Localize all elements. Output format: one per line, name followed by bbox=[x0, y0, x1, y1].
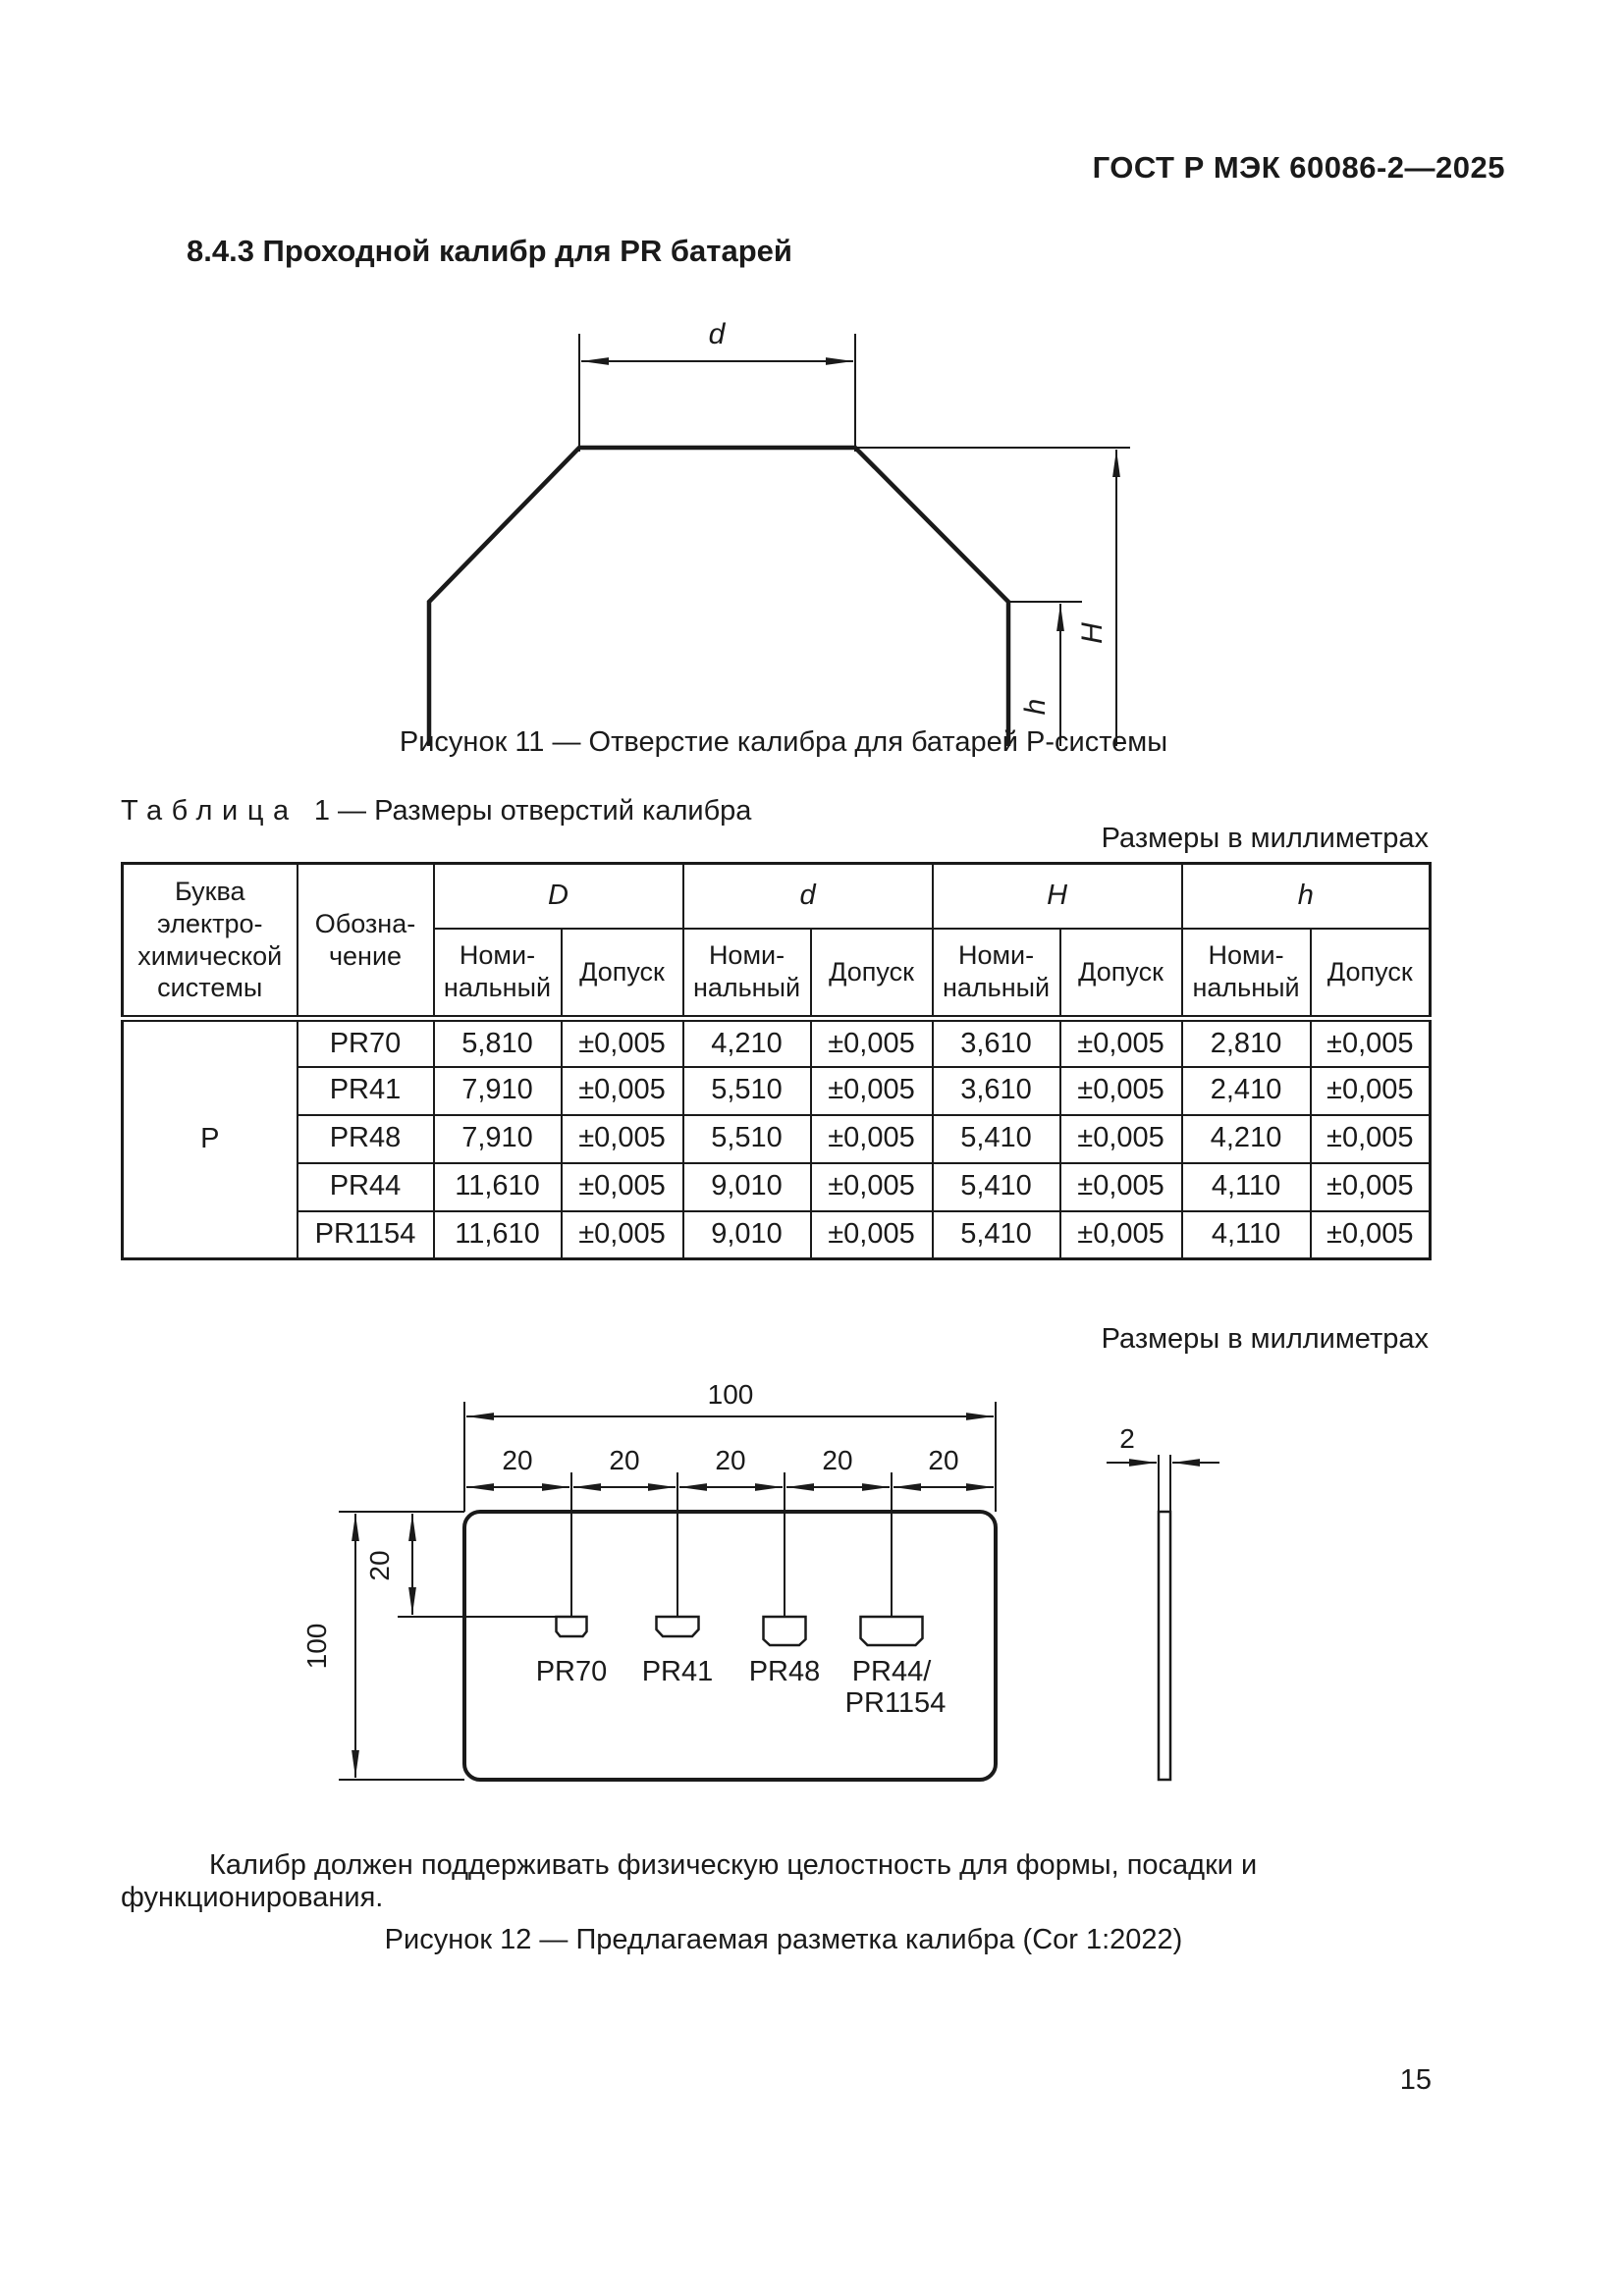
th-D-nominal: Номи- нальный bbox=[434, 929, 562, 1019]
dim-label-h: h bbox=[1019, 699, 1052, 716]
cell-value: 5,410 bbox=[933, 1115, 1060, 1163]
dim-step-label: 20 bbox=[822, 1445, 852, 1475]
cell-designation: PR70 bbox=[298, 1019, 434, 1067]
extension-lines bbox=[429, 334, 1130, 746]
document-page: ГОСТ Р МЭК 60086-2—2025 8.4.3 Проходной … bbox=[0, 0, 1624, 2296]
hole-label-pr44: PR44/ bbox=[852, 1656, 933, 1687]
cell-value: ±0,005 bbox=[1060, 1067, 1182, 1115]
cell-value: ±0,005 bbox=[562, 1067, 683, 1115]
cell-value: ±0,005 bbox=[562, 1211, 683, 1259]
section-heading: 8.4.3 Проходной калибр для PR батарей bbox=[187, 234, 792, 269]
th-group-D: D bbox=[434, 864, 683, 929]
cell-value: 2,810 bbox=[1182, 1019, 1311, 1067]
hole-label-pr1154: PR1154 bbox=[845, 1687, 947, 1719]
dimension-lines bbox=[355, 1416, 1219, 1778]
dimension-lines bbox=[431, 361, 1116, 746]
cell-value: 4,110 bbox=[1182, 1163, 1311, 1211]
cell-value: ±0,005 bbox=[1311, 1115, 1431, 1163]
cell-value: 5,510 bbox=[683, 1115, 811, 1163]
hole-pr41 bbox=[657, 1617, 699, 1636]
hole-pr48 bbox=[764, 1617, 806, 1645]
gauge-plate-side bbox=[1159, 1512, 1170, 1780]
cell-value: 5,510 bbox=[683, 1067, 811, 1115]
table1-label: Таблица bbox=[121, 795, 298, 827]
th-designation: Обозна- чение bbox=[298, 864, 434, 1019]
th-h-nominal: Номи- нальный bbox=[1182, 929, 1311, 1019]
cell-value: ±0,005 bbox=[562, 1115, 683, 1163]
table1-number-title: 1 — Размеры отверстий калибра bbox=[314, 795, 752, 827]
cell-value: ±0,005 bbox=[1060, 1163, 1182, 1211]
cell-value: ±0,005 bbox=[562, 1019, 683, 1067]
hole-label-pr41: PR41 bbox=[642, 1656, 714, 1687]
figure12-caption: Рисунок 12 — Предлагаемая разметка калиб… bbox=[121, 1924, 1446, 1956]
th-h-tolerance: Допуск bbox=[1311, 929, 1431, 1019]
document-header: ГОСТ Р МЭК 60086-2—2025 bbox=[1093, 150, 1505, 186]
gauge-holes bbox=[557, 1617, 923, 1645]
dim-hole-offset-label: 20 bbox=[364, 1550, 395, 1580]
cell-value: 11,610 bbox=[434, 1163, 562, 1211]
cell-value: 4,210 bbox=[1182, 1115, 1311, 1163]
cell-designation: PR44 bbox=[298, 1163, 434, 1211]
th-H-tolerance: Допуск bbox=[1060, 929, 1182, 1019]
figure12-units-note: Размеры в миллиметрах bbox=[1102, 1323, 1429, 1356]
dim-step-label: 20 bbox=[609, 1445, 639, 1475]
figure12-drawing: 100 20 20 20 20 20 100 20 2 PR70 PR41 PR… bbox=[295, 1364, 1237, 1796]
cell-value: ±0,005 bbox=[1060, 1211, 1182, 1259]
cell-value: ±0,005 bbox=[1060, 1019, 1182, 1067]
th-d-tolerance: Допуск bbox=[811, 929, 933, 1019]
cell-value: 11,610 bbox=[434, 1211, 562, 1259]
cell-value: 2,410 bbox=[1182, 1067, 1311, 1115]
table1-units-note: Размеры в миллиметрах bbox=[1102, 823, 1429, 855]
table-row: PR41 7,910 ±0,005 5,510 ±0,005 3,610 ±0,… bbox=[123, 1067, 1431, 1115]
cell-value: 5,410 bbox=[933, 1211, 1060, 1259]
cell-value: 5,810 bbox=[434, 1019, 562, 1067]
cell-value: ±0,005 bbox=[811, 1211, 933, 1259]
cell-designation: PR48 bbox=[298, 1115, 434, 1163]
cell-value: ±0,005 bbox=[811, 1019, 933, 1067]
figure11-drawing: d D H h bbox=[295, 294, 1178, 746]
dim-step-label: 20 bbox=[928, 1445, 958, 1475]
cell-value: ±0,005 bbox=[811, 1163, 933, 1211]
hole-label-pr48: PR48 bbox=[749, 1656, 821, 1687]
figure11-caption: Рисунок 11 — Отверстие калибра для батар… bbox=[121, 726, 1446, 759]
th-D-tolerance: Допуск bbox=[562, 929, 683, 1019]
hole-pr70 bbox=[557, 1617, 587, 1636]
hole-pr44 bbox=[861, 1617, 923, 1645]
cell-designation: PR1154 bbox=[298, 1211, 434, 1259]
th-group-d: d bbox=[683, 864, 933, 929]
cell-value: 3,610 bbox=[933, 1067, 1060, 1115]
th-system-letter: Буква электро- химической системы bbox=[123, 864, 298, 1019]
cell-value: ±0,005 bbox=[1311, 1211, 1431, 1259]
hole-label-pr70: PR70 bbox=[536, 1656, 608, 1687]
dim-total-width-label: 100 bbox=[708, 1379, 754, 1410]
cell-value: 9,010 bbox=[683, 1163, 811, 1211]
cell-value: ±0,005 bbox=[811, 1067, 933, 1115]
th-d-nominal: Номи- нальный bbox=[683, 929, 811, 1019]
cell-value: 3,610 bbox=[933, 1019, 1060, 1067]
dim-step-label: 20 bbox=[502, 1445, 532, 1475]
cell-value: ±0,005 bbox=[562, 1163, 683, 1211]
th-group-H: H bbox=[933, 864, 1182, 929]
dim-thickness-label: 2 bbox=[1119, 1423, 1135, 1454]
cell-value: 4,210 bbox=[683, 1019, 811, 1067]
figure12-note: Калибр должен поддерживать физическую це… bbox=[121, 1849, 1417, 1914]
th-H-nominal: Номи- нальный bbox=[933, 929, 1060, 1019]
dim-total-height-label: 100 bbox=[301, 1624, 332, 1670]
cell-value: ±0,005 bbox=[811, 1115, 933, 1163]
cell-value: 7,910 bbox=[434, 1115, 562, 1163]
table-row: PR48 7,910 ±0,005 5,510 ±0,005 5,410 ±0,… bbox=[123, 1115, 1431, 1163]
cell-value: ±0,005 bbox=[1311, 1067, 1431, 1115]
cell-system-letter: P bbox=[123, 1019, 298, 1259]
table-row: PR1154 11,610 ±0,005 9,010 ±0,005 5,410 … bbox=[123, 1211, 1431, 1259]
cell-value: ±0,005 bbox=[1311, 1163, 1431, 1211]
table1-title: Таблица 1 — Размеры отверстий калибра bbox=[121, 795, 751, 828]
dim-step-label: 20 bbox=[715, 1445, 745, 1475]
cell-value: 4,110 bbox=[1182, 1211, 1311, 1259]
table-row: P PR70 5,810 ±0,005 4,210 ±0,005 3,610 ±… bbox=[123, 1019, 1431, 1067]
cell-value: ±0,005 bbox=[1060, 1115, 1182, 1163]
table-row: PR44 11,610 ±0,005 9,010 ±0,005 5,410 ±0… bbox=[123, 1163, 1431, 1211]
dim-label-H: H bbox=[1076, 622, 1109, 644]
cell-value: 9,010 bbox=[683, 1211, 811, 1259]
dim-label-d: d bbox=[709, 318, 727, 350]
page-number: 15 bbox=[1400, 2064, 1432, 2097]
th-group-h: h bbox=[1182, 864, 1431, 929]
cell-value: ±0,005 bbox=[1311, 1019, 1431, 1067]
table1: Буква электро- химической системы Обозна… bbox=[121, 862, 1432, 1260]
cell-value: 5,410 bbox=[933, 1163, 1060, 1211]
cell-value: 7,910 bbox=[434, 1067, 562, 1115]
cell-designation: PR41 bbox=[298, 1067, 434, 1115]
